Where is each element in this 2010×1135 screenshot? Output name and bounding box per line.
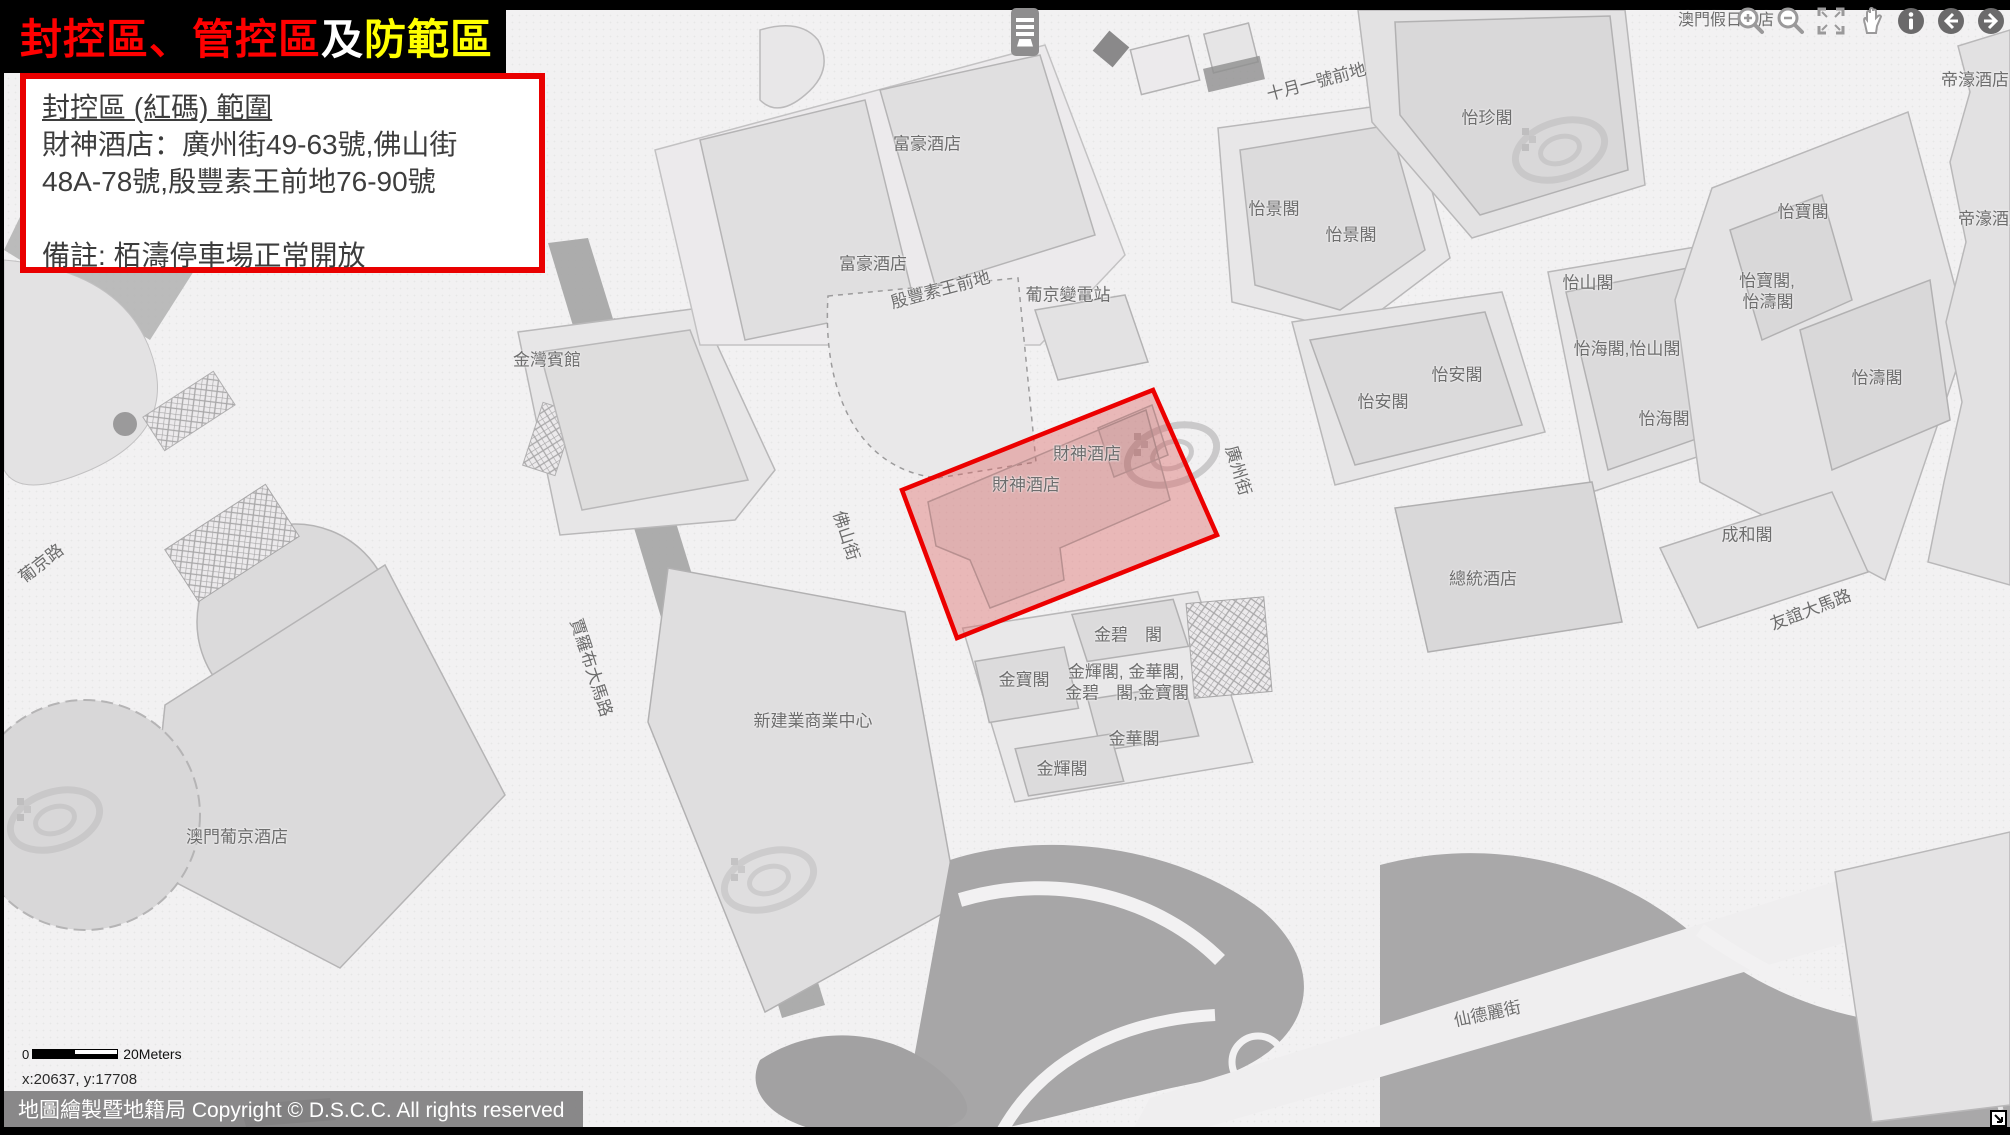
page-title: 封控區、管控區及防範區 [20,6,493,67]
scale-label: 20Meters [123,1046,181,1062]
scale-bar: 0 20Meters [22,1046,182,1062]
cursor-coordinates: x:20637, y:17708 [22,1071,137,1088]
map-toolbar [1734,4,2008,38]
title-bar: 封控區、管控區及防範區 [0,0,506,73]
layers-icon[interactable] [1011,8,1039,56]
page-title-segment: 防範區 [364,6,493,67]
page-title-segment: 封控區、管控區 [20,6,321,67]
info-heading: 封控區 (紅碼) 範圍 [42,89,523,126]
info-line1: 財神酒店：廣州街49-63號,佛山街 [42,126,523,163]
info-icon[interactable] [1894,4,1928,38]
back-icon[interactable] [1934,4,1968,38]
info-line2: 48A-78號,殷豐素王前地76-90號 [42,163,523,200]
info-note: 備註: 栢濤停車場正常開放 [42,237,523,274]
zoom-out-icon[interactable] [1774,4,1808,38]
scale-zero: 0 [22,1047,29,1062]
page-title-segment: 及 [321,6,364,67]
info-spacer [42,200,523,237]
map-application: 澳門假日酒店帝濠酒店帝濠酒店十月一號前地怡珍閣富豪酒店怡景閣怡寶閣怡景閣富豪酒店… [0,0,2010,1135]
resize-corner-icon[interactable] [1990,1110,2007,1127]
fullscreen-icon[interactable] [1814,4,1848,38]
forward-icon[interactable] [1974,4,2008,38]
zoom-in-icon[interactable] [1734,4,1768,38]
scale-bar-graphic [32,1049,118,1059]
pan-hand-icon[interactable] [1854,4,1888,38]
copyright-text: 地圖繪製暨地籍局 Copyright © D.S.C.C. All rights… [18,1094,564,1124]
copyright-bar: 地圖繪製暨地籍局 Copyright © D.S.C.C. All rights… [4,1091,583,1127]
lockdown-info-box: 封控區 (紅碼) 範圍 財神酒店：廣州街49-63號,佛山街 48A-78號,殷… [20,73,545,273]
